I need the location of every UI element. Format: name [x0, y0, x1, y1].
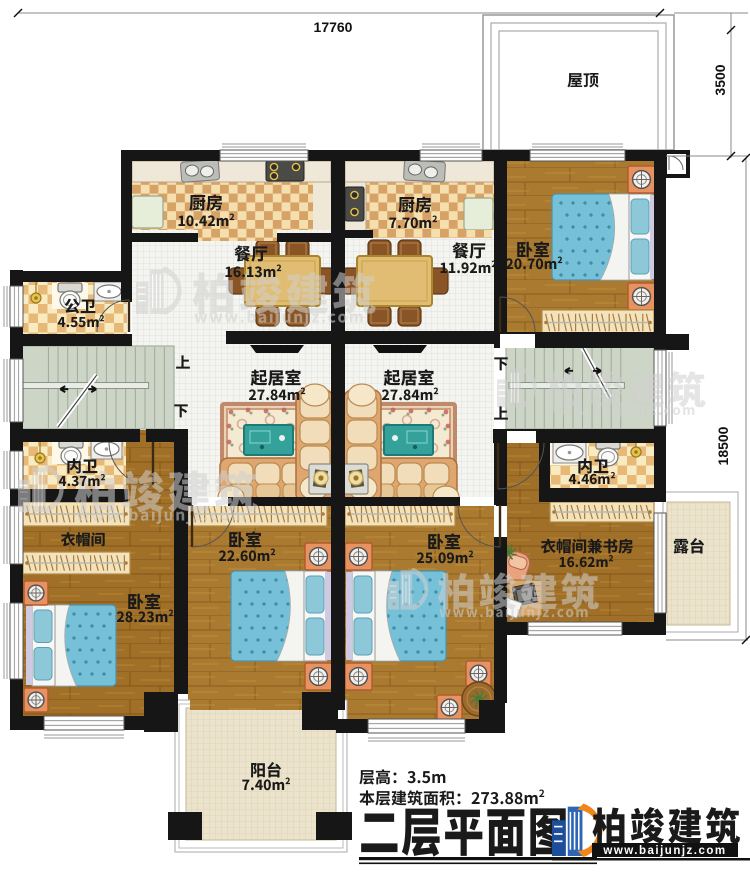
svg-text:www.baijunjz.com: www.baijunjz.com: [602, 845, 726, 857]
svg-text:3500: 3500: [712, 64, 728, 95]
svg-text:18500: 18500: [715, 426, 731, 465]
svg-text:17760: 17760: [314, 19, 353, 35]
